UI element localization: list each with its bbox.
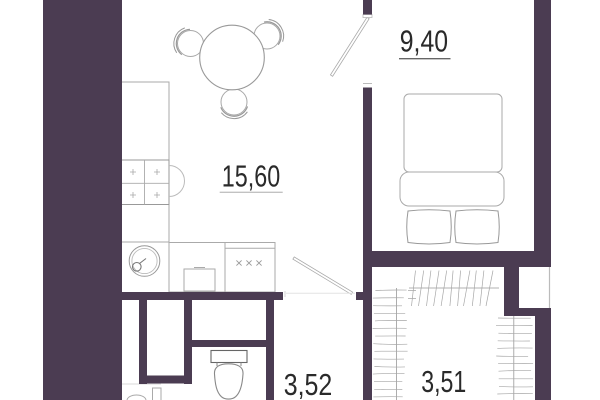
- svg-text:15,60: 15,60: [222, 158, 280, 193]
- svg-text:3,52: 3,52: [284, 367, 333, 400]
- svg-text:9,40: 9,40: [400, 24, 448, 58]
- svg-text:3,51: 3,51: [421, 364, 466, 399]
